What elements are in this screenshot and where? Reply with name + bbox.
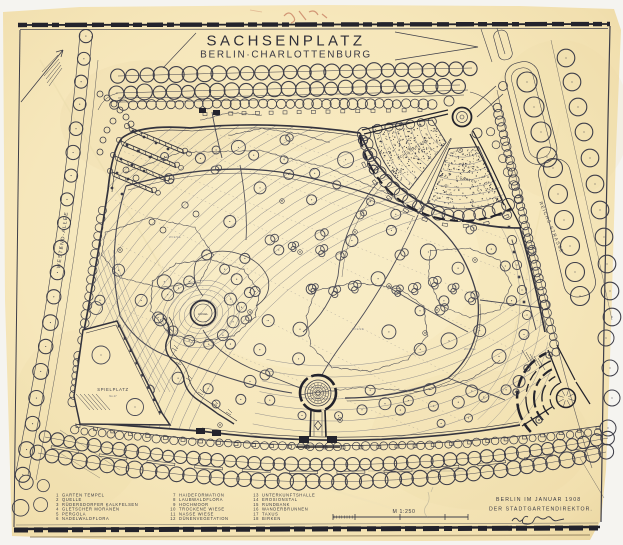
svg-text:12: 12 bbox=[170, 516, 176, 521]
svg-text:WIESE: WIESE bbox=[169, 235, 181, 239]
svg-text:DER STADTGARTENDIREKTOR.: DER STADTGARTENDIREKTOR. bbox=[489, 507, 593, 513]
svg-text:WIESE: WIESE bbox=[464, 347, 476, 351]
svg-text:BIRKEN: BIRKEN bbox=[262, 516, 281, 521]
svg-text:SPIELPLATZ: SPIELPLATZ bbox=[97, 387, 129, 392]
svg-text:No.17: No.17 bbox=[109, 394, 117, 398]
svg-text:BERLIN·CHARLOTTENBURG: BERLIN·CHARLOTTENBURG bbox=[200, 50, 372, 61]
svg-text:18: 18 bbox=[253, 516, 259, 521]
svg-text:6: 6 bbox=[56, 516, 59, 521]
svg-text:M 1:250: M 1:250 bbox=[393, 509, 416, 515]
svg-text:DÜNENVEGETATION: DÜNENVEGETATION bbox=[179, 516, 229, 521]
svg-text:BERLIN IM JANUAR 1908: BERLIN IM JANUAR 1908 bbox=[496, 497, 581, 503]
svg-text:WIESE: WIESE bbox=[352, 327, 364, 331]
svg-text:SACHSENPLATZ: SACHSENPLATZ bbox=[207, 33, 366, 50]
svg-text:HÜGEL: HÜGEL bbox=[198, 312, 209, 316]
svg-text:NADELWALDFLORA: NADELWALDFLORA bbox=[62, 516, 109, 521]
